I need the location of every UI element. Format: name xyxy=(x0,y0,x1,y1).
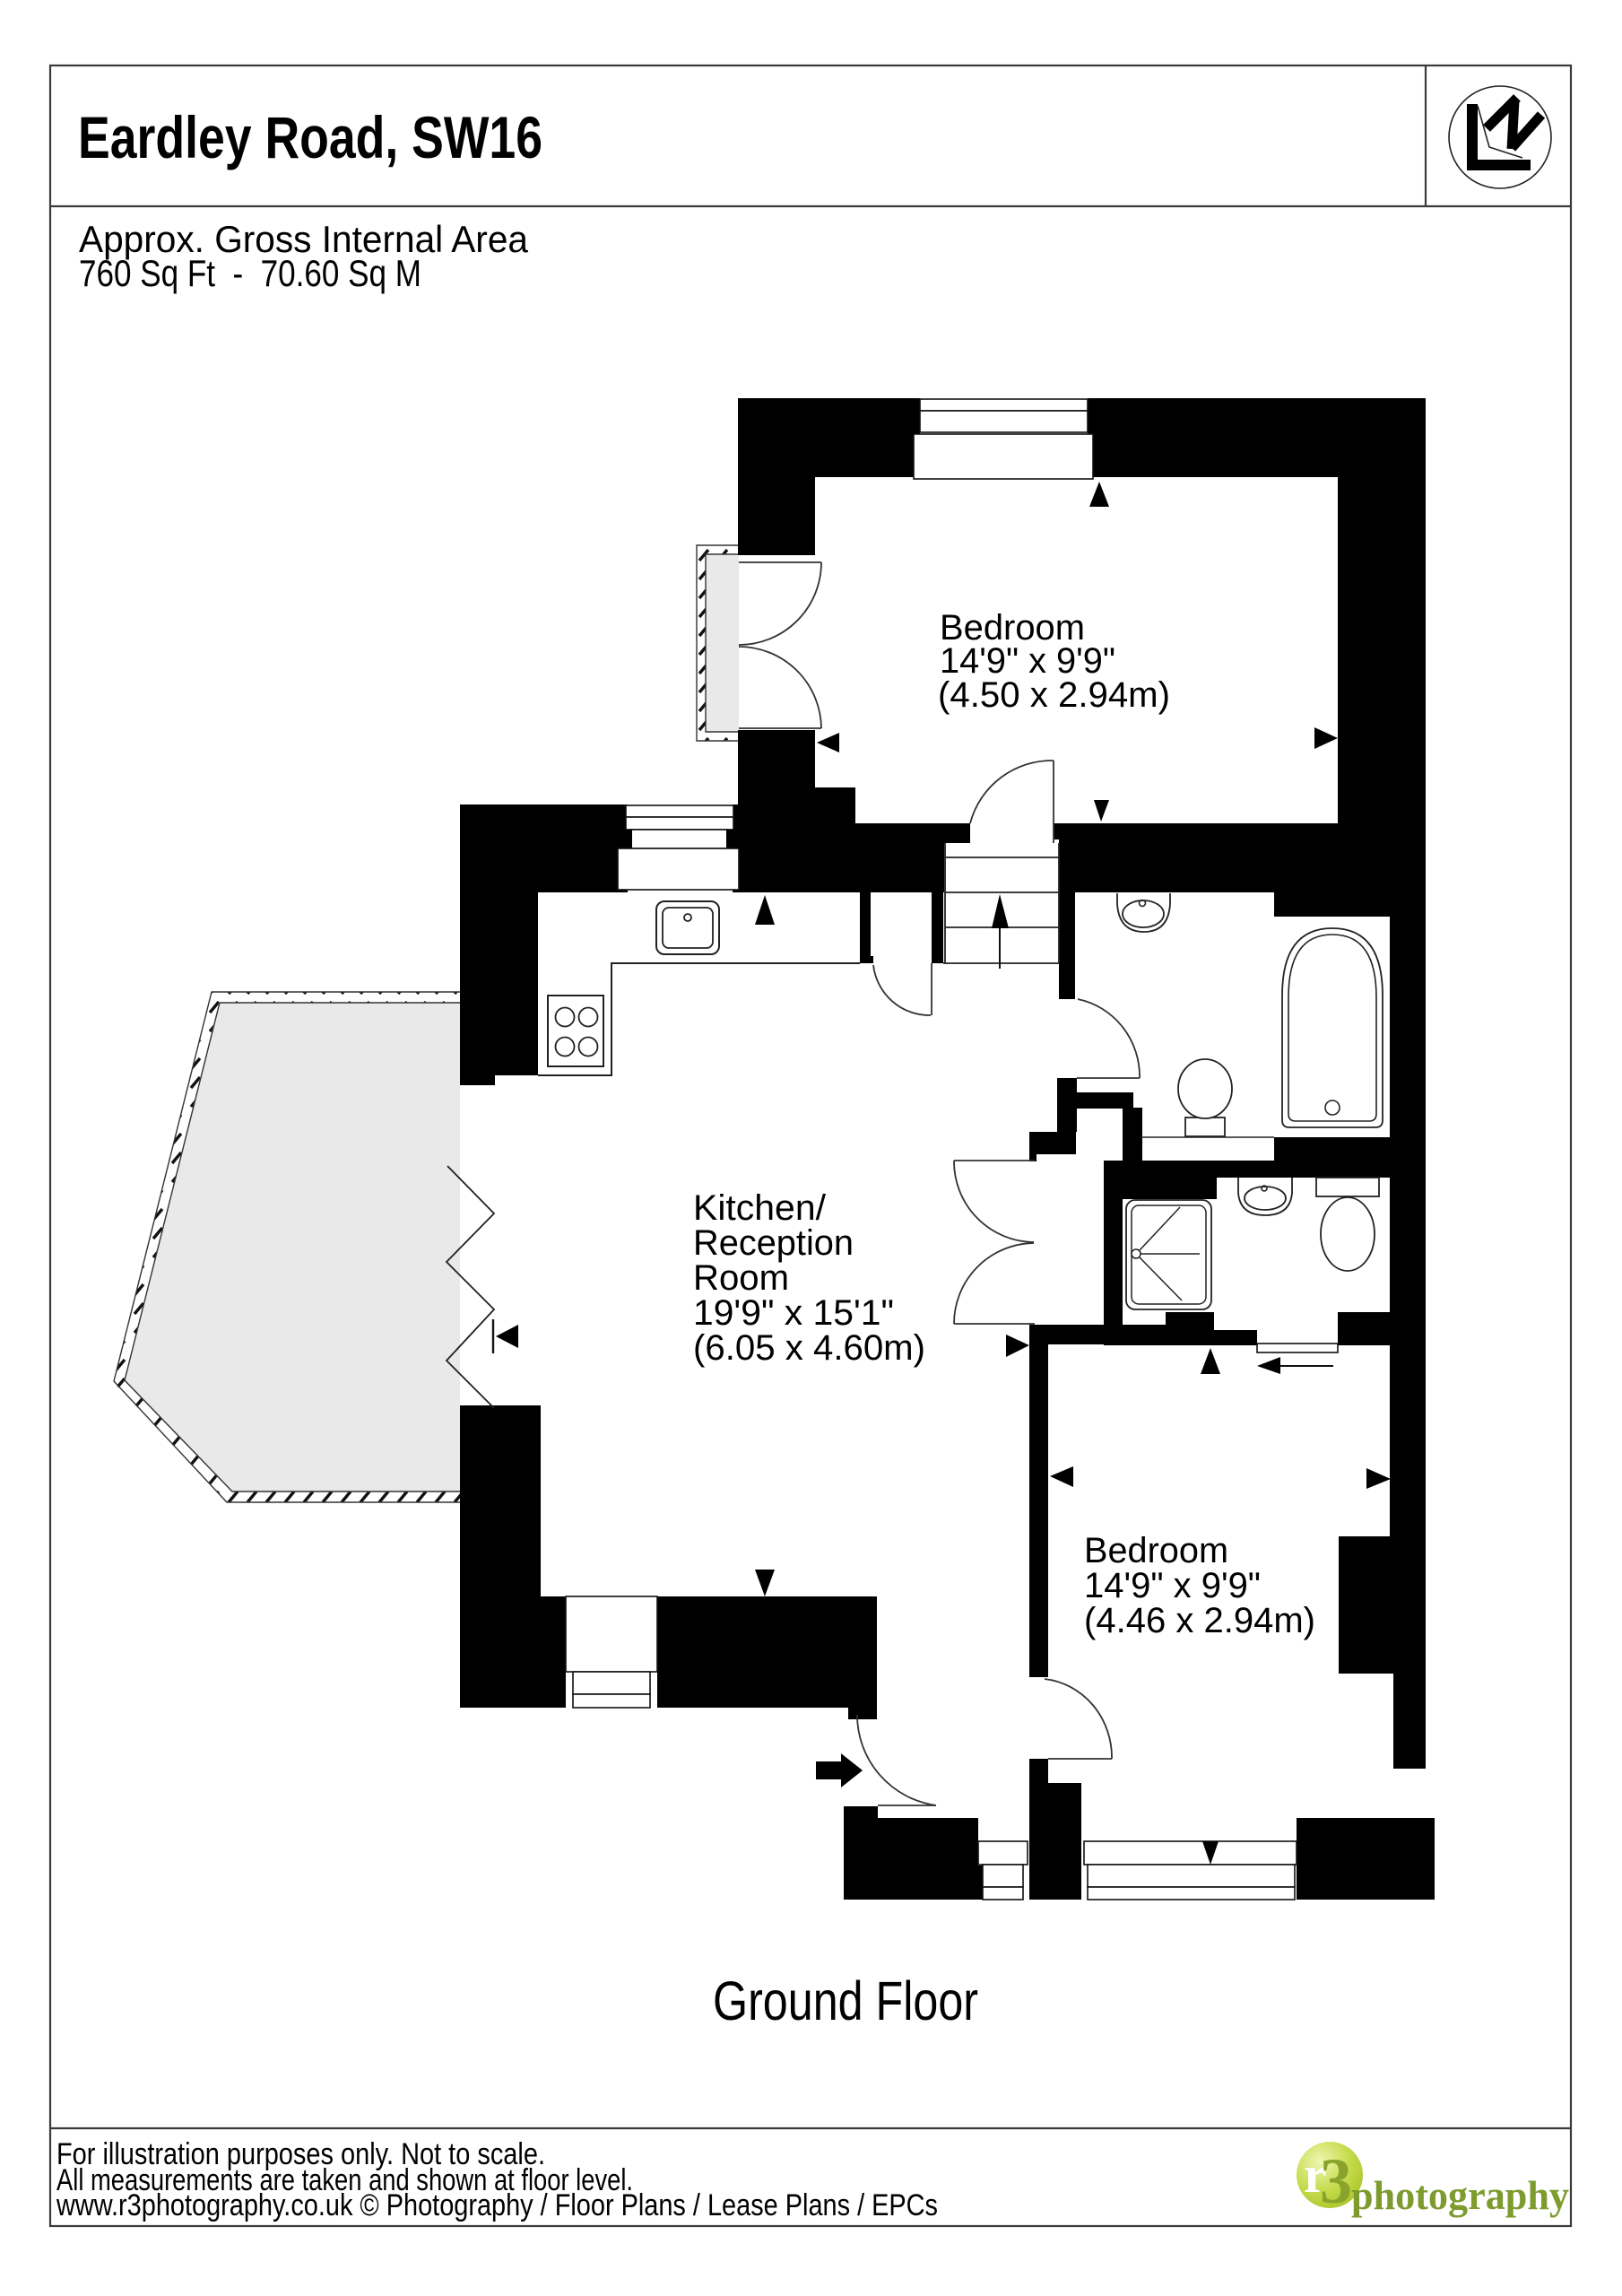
svg-text:Eardley Road, SW16: Eardley Road, SW16 xyxy=(78,104,542,170)
svg-text:Room: Room xyxy=(693,1258,789,1298)
svg-text:(6.05 x 4.60m): (6.05 x 4.60m) xyxy=(693,1328,925,1368)
svg-text:Bedroom: Bedroom xyxy=(1084,1531,1228,1570)
svg-text:Reception: Reception xyxy=(693,1223,854,1263)
svg-text:760 Sq Ft - 70.60 Sq M: 760 Sq Ft - 70.60 Sq M xyxy=(79,252,421,294)
svg-text:photography: photography xyxy=(1351,2172,1569,2218)
svg-text:Ground Floor: Ground Floor xyxy=(713,1970,978,2031)
svg-text:14'9" x 9'9": 14'9" x 9'9" xyxy=(1084,1566,1261,1605)
svg-text:Kitchen/: Kitchen/ xyxy=(693,1188,827,1228)
svg-text:www.r3photography.co.uk © Phot: www.r3photography.co.uk © Photography / … xyxy=(56,2188,938,2222)
svg-text:3: 3 xyxy=(1320,2145,1352,2217)
svg-text:19'9" x 15'1": 19'9" x 15'1" xyxy=(693,1293,894,1333)
svg-text:(4.46 x 2.94m): (4.46 x 2.94m) xyxy=(1084,1601,1315,1640)
svg-text:(4.50 x 2.94m): (4.50 x 2.94m) xyxy=(938,675,1170,715)
